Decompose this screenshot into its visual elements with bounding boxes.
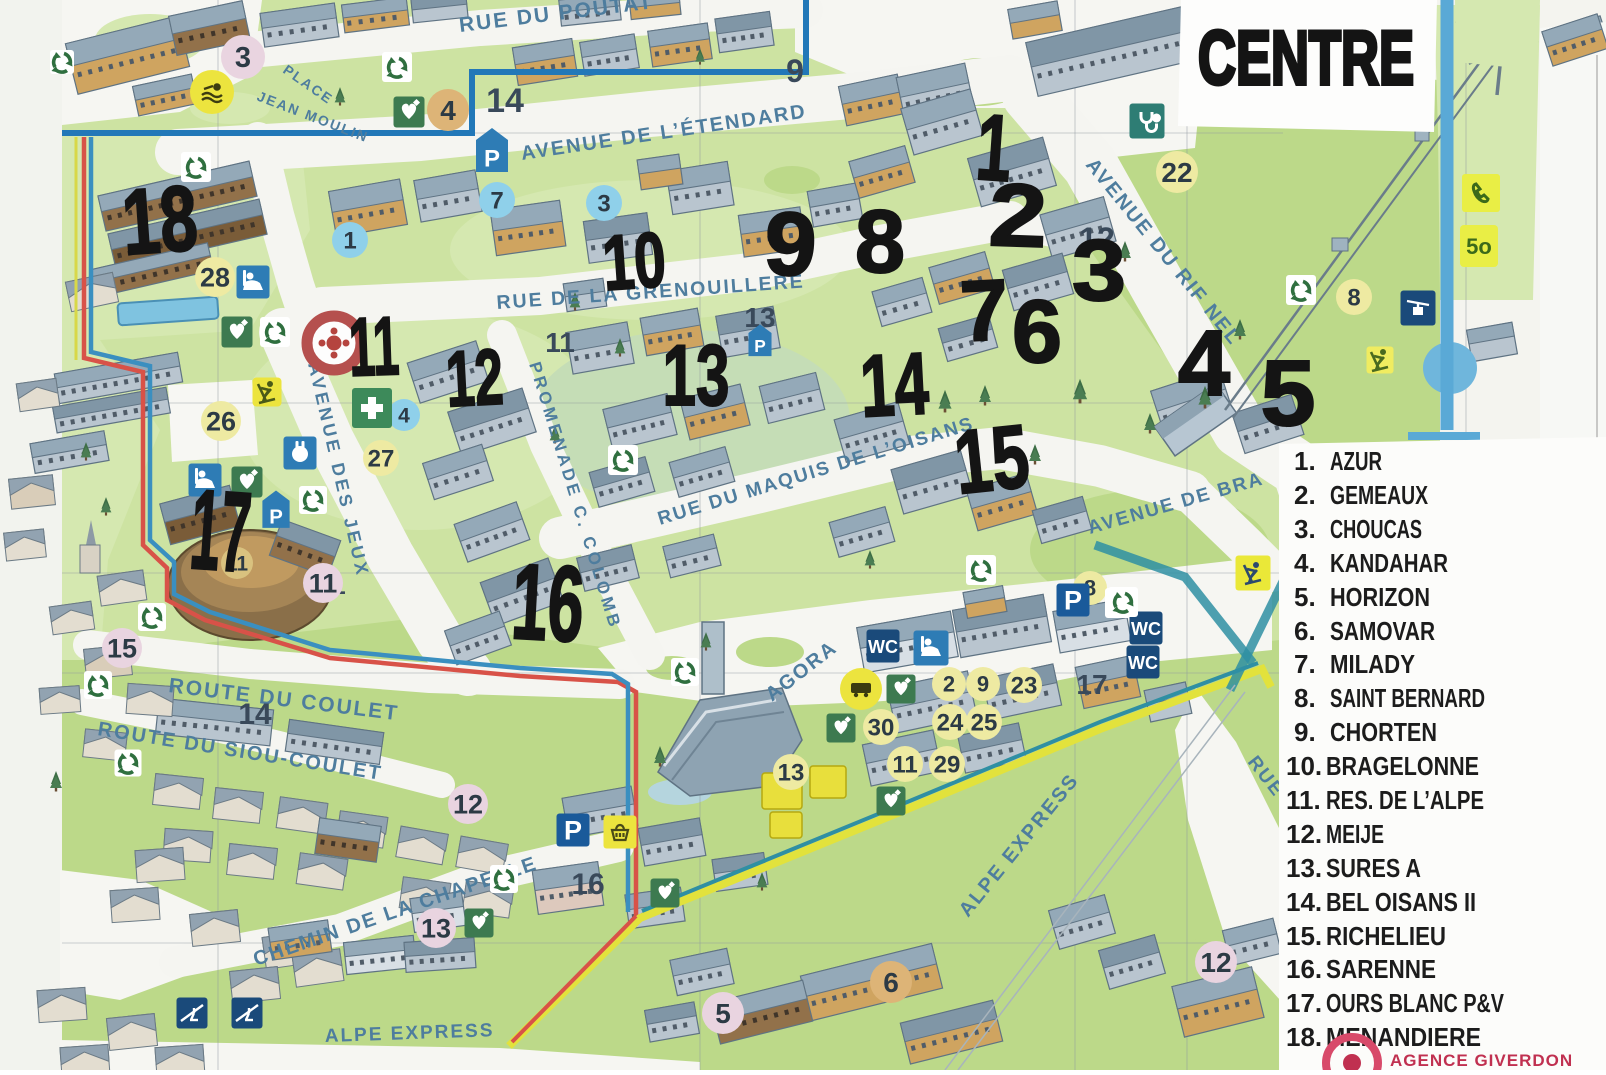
svg-text:3: 3	[1072, 223, 1126, 319]
svg-text:P: P	[269, 506, 283, 528]
svg-text:CHORTEN: CHORTEN	[1330, 717, 1437, 747]
svg-text:SARENNE: SARENNE	[1326, 954, 1436, 984]
svg-text:8: 8	[1347, 284, 1360, 311]
svg-text:18.: 18.	[1286, 1022, 1322, 1052]
svg-text:5: 5	[715, 998, 731, 1029]
svg-text:15: 15	[107, 633, 137, 663]
svg-text:P: P	[1064, 586, 1082, 616]
svg-text:16: 16	[509, 540, 587, 665]
svg-text:RES. DE L’ALPE: RES. DE L’ALPE	[1326, 785, 1484, 815]
svg-text:7.: 7.	[1294, 649, 1316, 679]
svg-text:14: 14	[858, 333, 931, 435]
svg-text:17.: 17.	[1286, 988, 1322, 1018]
svg-text:SAINT BERNARD: SAINT BERNARD	[1330, 683, 1485, 713]
svg-text:12.: 12.	[1286, 819, 1322, 849]
svg-text:3: 3	[597, 190, 610, 217]
svg-text:22: 22	[1161, 157, 1192, 188]
svg-text:15.: 15.	[1286, 921, 1322, 951]
svg-text:12: 12	[444, 332, 506, 424]
svg-text:2: 2	[943, 672, 955, 697]
svg-text:3: 3	[235, 42, 251, 74]
svg-text:AZUR: AZUR	[1330, 446, 1382, 476]
svg-text:WC: WC	[868, 637, 898, 657]
svg-text:30: 30	[868, 714, 895, 741]
svg-text:17: 17	[186, 466, 255, 597]
svg-text:16.: 16.	[1286, 954, 1322, 984]
svg-text:9: 9	[762, 194, 819, 297]
svg-text:7: 7	[958, 262, 1011, 360]
svg-text:8.: 8.	[1294, 683, 1316, 713]
svg-text:4.: 4.	[1294, 548, 1316, 578]
svg-text:BRAGELONNE: BRAGELONNE	[1326, 751, 1479, 781]
svg-text:5.: 5.	[1294, 582, 1316, 612]
svg-text:10: 10	[600, 215, 669, 307]
svg-text:13: 13	[778, 759, 805, 786]
svg-text:HORIZON: HORIZON	[1330, 582, 1430, 612]
svg-text:P: P	[754, 336, 766, 356]
svg-text:13: 13	[663, 328, 730, 424]
svg-text:5: 5	[1261, 341, 1316, 445]
svg-text:26: 26	[206, 406, 236, 436]
svg-text:6: 6	[883, 967, 899, 998]
svg-text:BEL OISANS II: BEL OISANS II	[1326, 887, 1476, 917]
svg-text:24: 24	[937, 709, 964, 736]
svg-text:13: 13	[421, 913, 451, 943]
svg-text:9.: 9.	[1294, 717, 1316, 747]
svg-text:14: 14	[238, 698, 272, 731]
svg-text:P: P	[564, 816, 582, 846]
svg-text:11.: 11.	[1286, 785, 1321, 815]
svg-text:4: 4	[440, 95, 456, 126]
svg-text:18: 18	[119, 166, 201, 275]
svg-text:1: 1	[343, 227, 356, 254]
svg-text:MEIJE: MEIJE	[1326, 819, 1384, 849]
svg-text:7: 7	[490, 187, 503, 214]
svg-text:SURES A: SURES A	[1326, 853, 1421, 883]
svg-text:25: 25	[971, 709, 998, 736]
svg-text:8: 8	[855, 191, 905, 291]
svg-text:11: 11	[309, 568, 338, 598]
svg-text:23: 23	[1011, 672, 1038, 699]
svg-text:10.: 10.	[1286, 751, 1322, 781]
svg-text:15: 15	[950, 407, 1034, 514]
svg-text:16: 16	[571, 868, 604, 901]
svg-text:5o: 5o	[1466, 234, 1492, 259]
svg-text:27: 27	[368, 445, 395, 472]
svg-text:GEMEAUX: GEMEAUX	[1330, 480, 1428, 510]
svg-text:AGENCE GIVERDON: AGENCE GIVERDON	[1390, 1051, 1573, 1070]
svg-text:17: 17	[1076, 669, 1107, 700]
svg-text:12: 12	[453, 789, 483, 819]
svg-text:6: 6	[1012, 281, 1062, 381]
svg-text:SAMOVAR: SAMOVAR	[1330, 616, 1435, 646]
svg-text:11: 11	[545, 327, 575, 358]
svg-text:2: 2	[987, 164, 1048, 266]
svg-text:3.: 3.	[1294, 514, 1316, 544]
svg-text:OURS BLANC P&V: OURS BLANC P&V	[1326, 988, 1504, 1018]
svg-text:4: 4	[398, 404, 410, 427]
svg-text:KANDAHAR: KANDAHAR	[1330, 548, 1448, 578]
svg-text:9: 9	[786, 53, 804, 89]
svg-text:28: 28	[200, 262, 230, 292]
svg-text:CENTRE: CENTRE	[1198, 16, 1414, 101]
svg-text:4: 4	[1178, 311, 1230, 415]
svg-text:6.: 6.	[1294, 616, 1316, 646]
svg-text:29: 29	[934, 751, 961, 778]
svg-text:WC: WC	[1128, 653, 1158, 673]
svg-text:11: 11	[347, 299, 400, 394]
svg-text:14.: 14.	[1286, 887, 1322, 917]
svg-text:CHOUCAS: CHOUCAS	[1330, 514, 1422, 544]
svg-text:MILADY: MILADY	[1330, 649, 1415, 679]
svg-text:2.: 2.	[1294, 480, 1316, 510]
svg-text:13.: 13.	[1286, 853, 1322, 883]
svg-text:P: P	[484, 146, 500, 173]
svg-text:1.: 1.	[1294, 446, 1316, 476]
svg-text:12: 12	[1200, 947, 1231, 978]
svg-text:14: 14	[486, 82, 524, 120]
svg-text:RICHELIEU: RICHELIEU	[1326, 921, 1446, 951]
svg-text:9: 9	[977, 672, 989, 697]
svg-text:11: 11	[892, 751, 917, 778]
svg-text:WC: WC	[1131, 619, 1161, 639]
